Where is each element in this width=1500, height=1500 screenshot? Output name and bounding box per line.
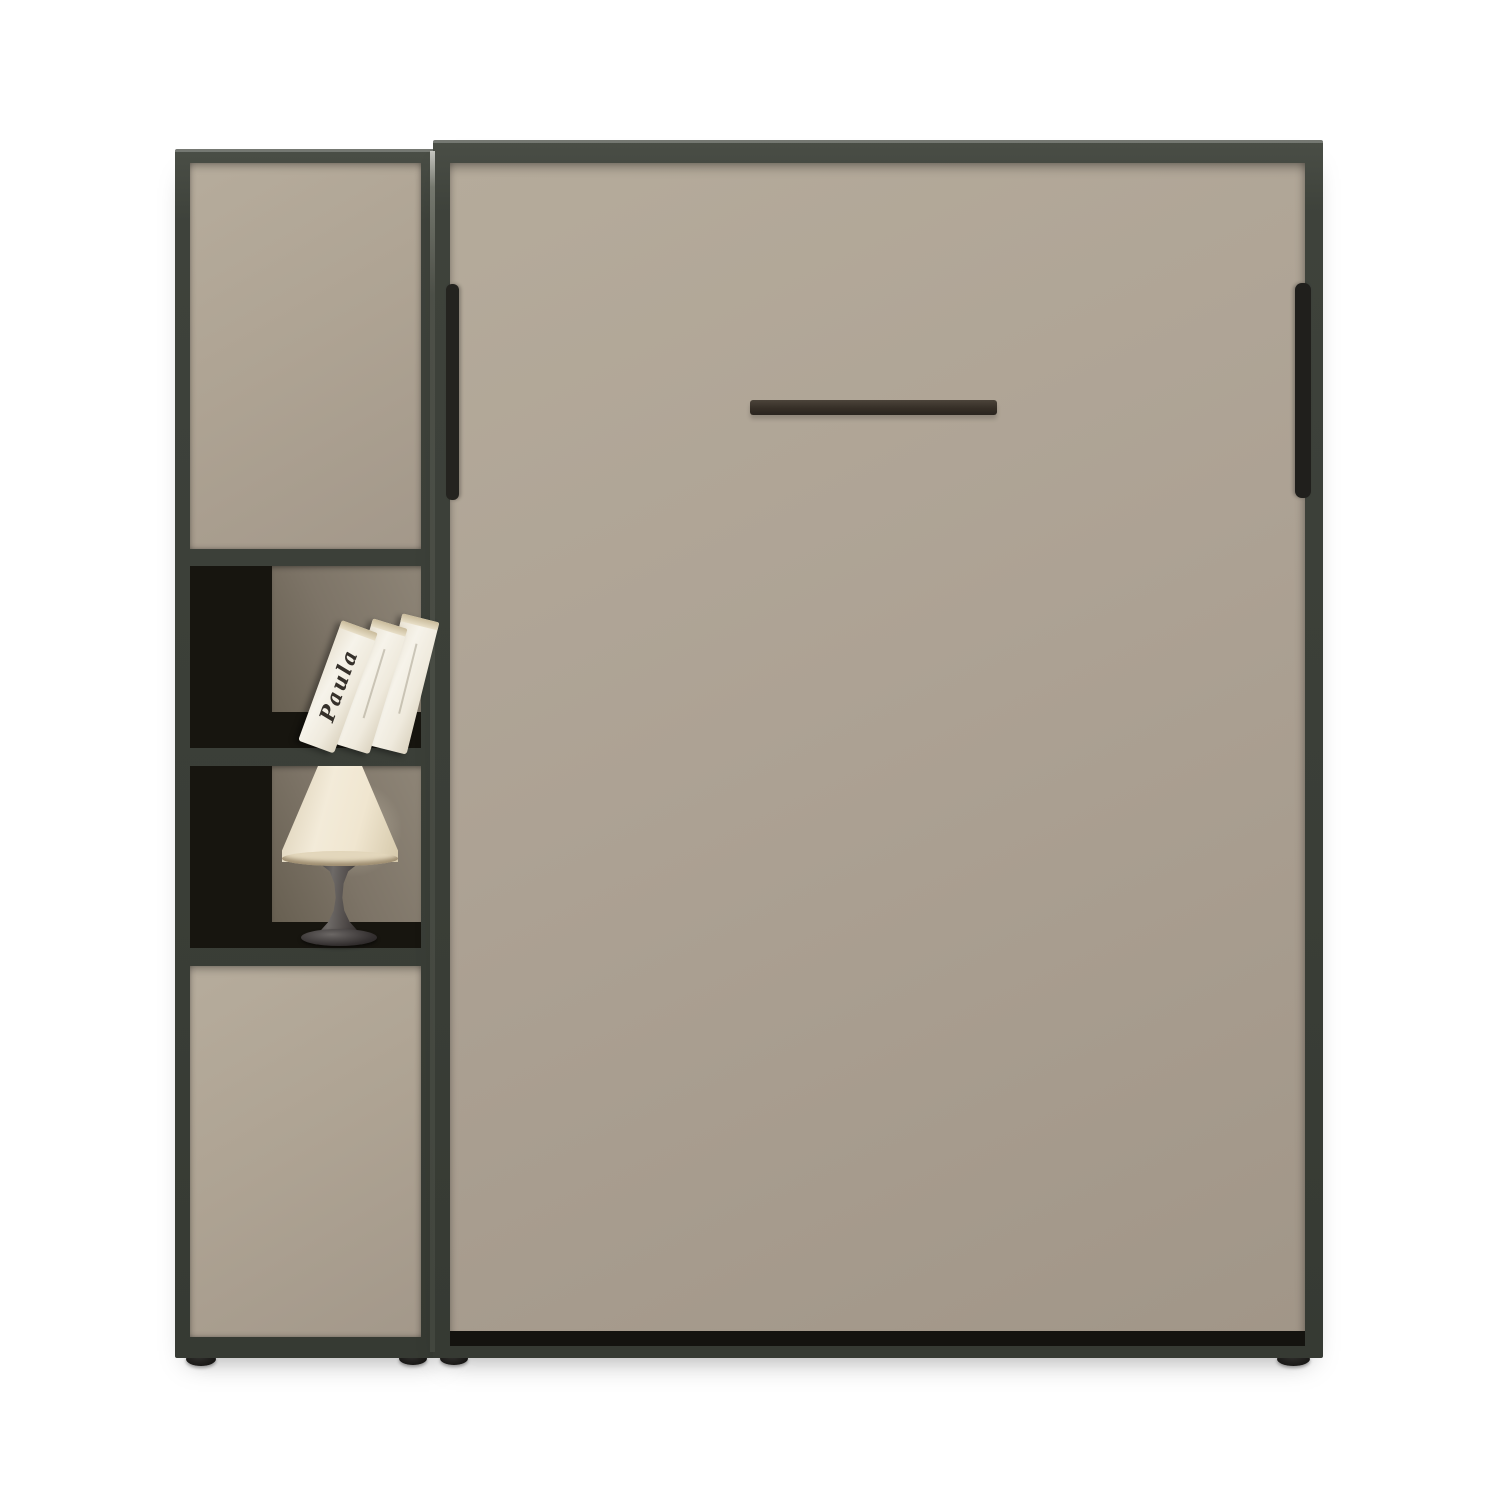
cabinet-top-door (190, 163, 421, 549)
table-lamp-foot (301, 929, 377, 946)
wall-bed-left-hinge-recess (446, 284, 459, 500)
product-image: Paula (0, 0, 1500, 1500)
wall-bed-right-hinge-recess (1295, 283, 1311, 498)
wall-bed-bottom-gap (450, 1331, 1305, 1346)
wall-bed-handle (750, 400, 997, 415)
table-lamp-shade-rim (282, 851, 398, 866)
cabinet-bed-seam (430, 151, 435, 1352)
book-spine-mark (398, 643, 417, 713)
cabinet-bottom-door (190, 966, 421, 1337)
wall-bed-front-panel (450, 163, 1305, 1333)
